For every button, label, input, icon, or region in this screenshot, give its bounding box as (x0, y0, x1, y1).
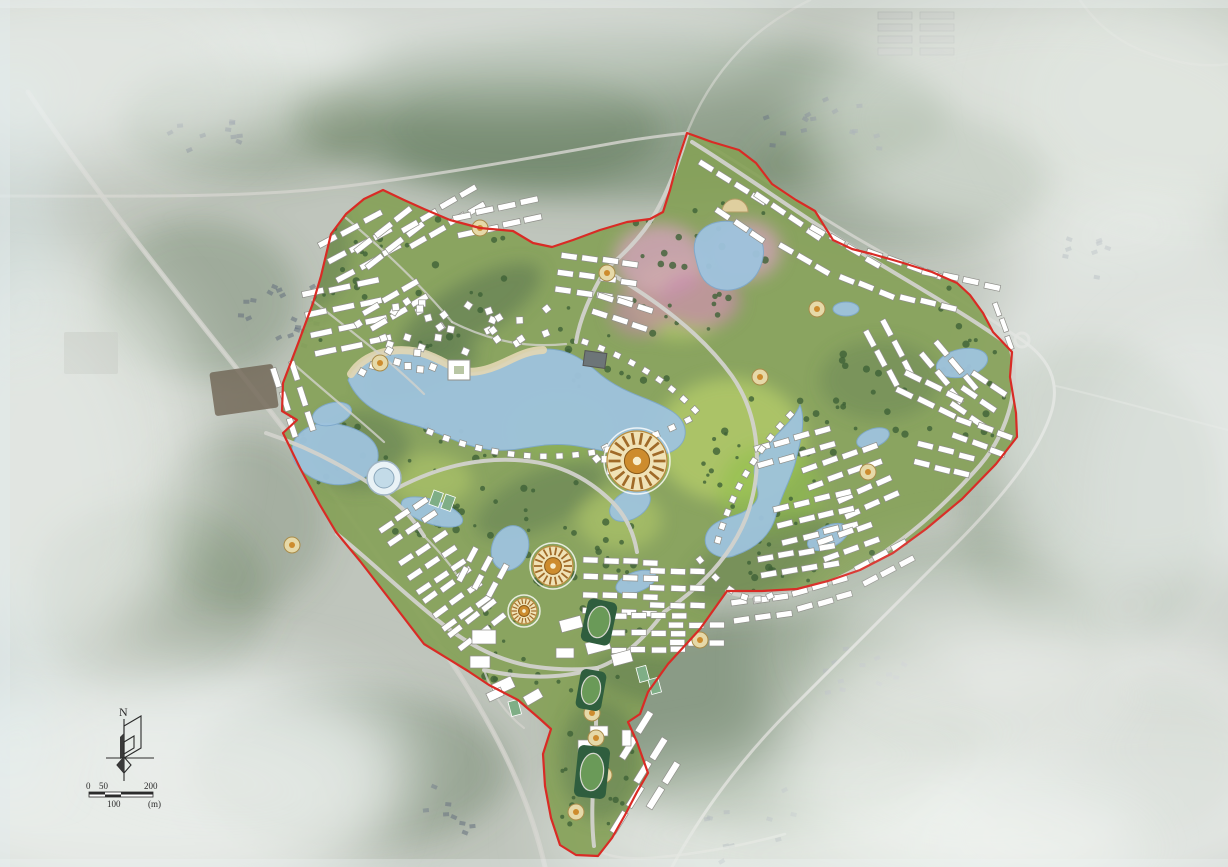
scale-200: 200 (144, 781, 158, 791)
courtyard-hotel-core (454, 366, 464, 374)
pond-g (833, 302, 859, 316)
sunflower-plaza (604, 428, 670, 494)
masterplan-map: N 0 50 200 100 (m) (0, 0, 1228, 867)
glass-dome-inner (374, 468, 394, 488)
roundabout-node (809, 301, 825, 317)
roundabout-node (860, 464, 876, 480)
roundabout-node (752, 369, 768, 385)
roundabout-node (599, 265, 615, 281)
running-track (573, 744, 610, 799)
roundabout-node (372, 355, 388, 371)
roundabout-node (588, 730, 604, 746)
roundabout-node (284, 537, 300, 553)
clubhouse-dark-roof (583, 351, 607, 369)
bare-soil-field (209, 364, 279, 416)
sheet-edge-left (0, 0, 10, 867)
sunflower-plaza (530, 543, 576, 589)
scale-100: 100 (107, 799, 121, 809)
scale-0: 0 (86, 781, 91, 791)
roundabout-node (568, 804, 584, 820)
sheet-edge-bottom (0, 859, 1228, 867)
scale-50: 50 (99, 781, 109, 791)
scale-unit: (m) (148, 799, 161, 809)
sheet-edge-top (0, 0, 1228, 8)
sunflower-plaza (508, 595, 540, 627)
masterplan-aerial-rendering: N 0 50 200 100 (m) (0, 0, 1228, 867)
north-label: N (119, 705, 128, 719)
